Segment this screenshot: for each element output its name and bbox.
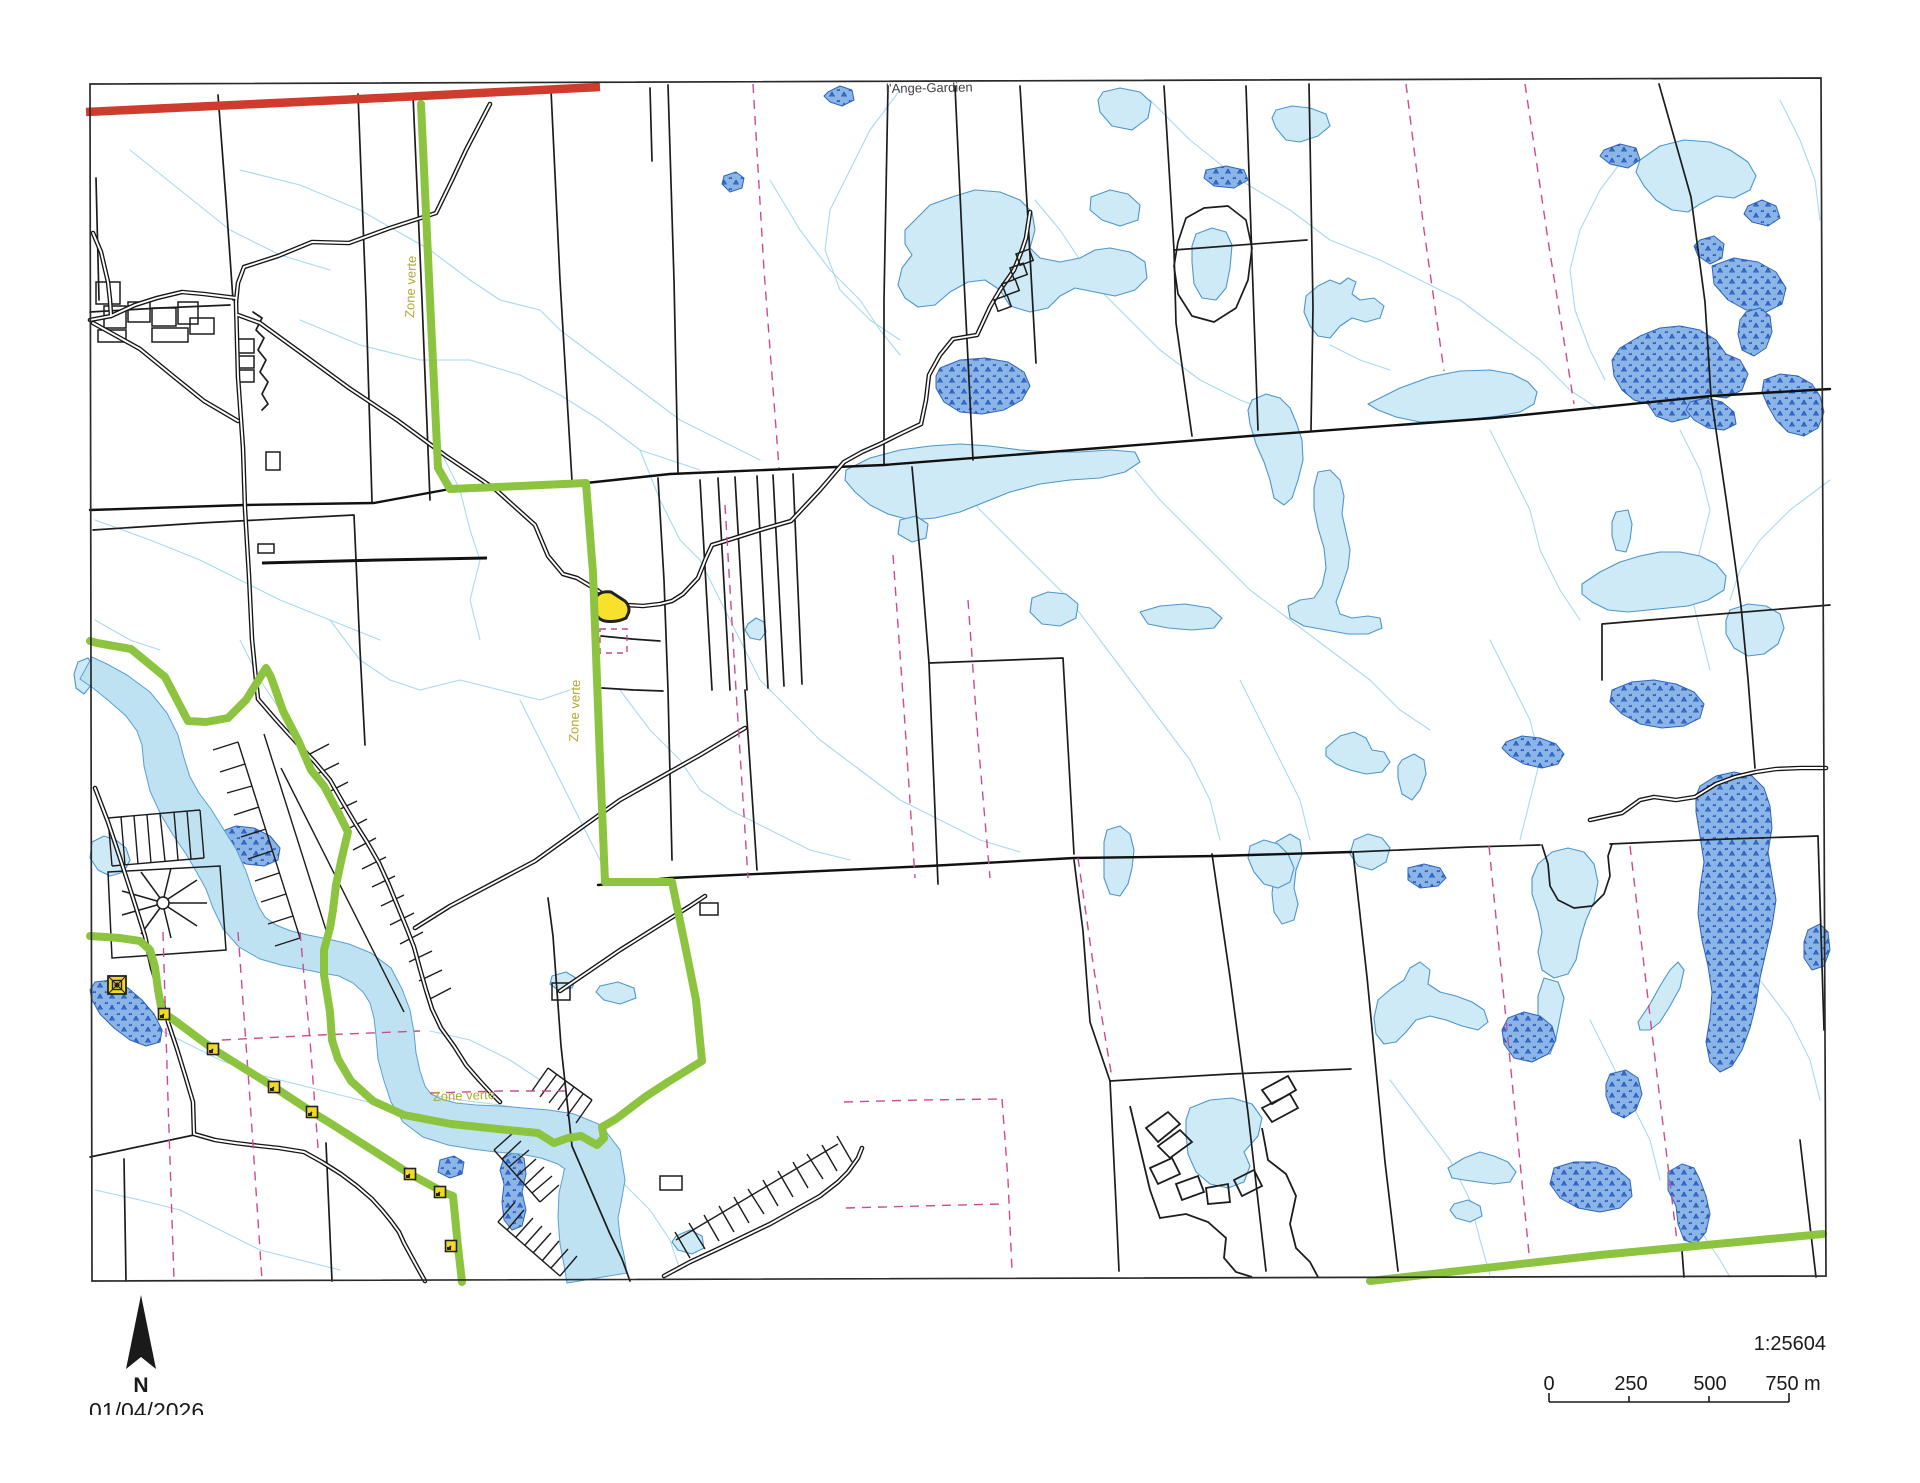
svg-text:N: N	[133, 1374, 148, 1397]
svg-text:1:25604: 1:25604	[1754, 1333, 1826, 1355]
svg-text:0: 0	[1543, 1373, 1554, 1395]
svg-text:500: 500	[1693, 1373, 1726, 1395]
svg-text:750: 750	[1765, 1373, 1798, 1395]
svg-text:Zone verte: Zone verte	[433, 1087, 496, 1104]
svg-text:Zone verte: Zone verte	[566, 679, 583, 742]
svg-text:m: m	[1804, 1373, 1821, 1395]
svg-text:Zone verte: Zone verte	[402, 255, 419, 318]
svg-text:250: 250	[1614, 1373, 1647, 1395]
